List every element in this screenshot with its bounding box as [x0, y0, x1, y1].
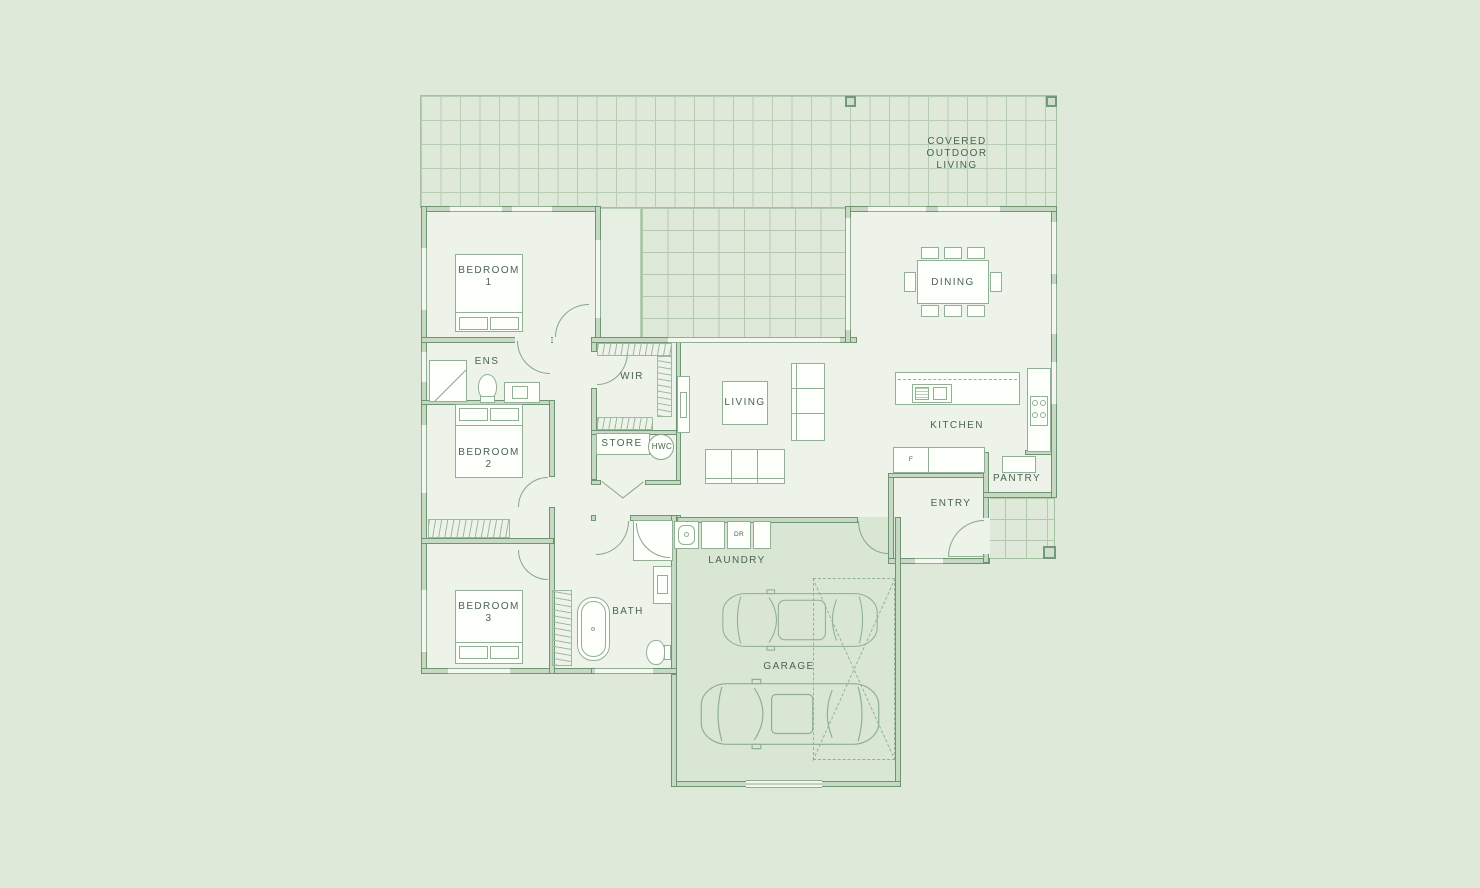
- bath-toilet-tank: [664, 645, 671, 660]
- window-bed3-left: [421, 590, 427, 652]
- kitchen-sink-basin-1: [915, 387, 929, 400]
- door-leaf-front: [948, 556, 985, 557]
- dining-chair-right: [990, 272, 1002, 292]
- bed1-fold-line: [456, 312, 522, 313]
- floor-plan: COVERED OUTDOOR LIVING BEDROOM 1 ENS WIR…: [0, 0, 1480, 888]
- label-entry: ENTRY: [931, 498, 972, 510]
- wir-rail-bottom: [597, 417, 653, 430]
- laundry-tub-drain: [684, 532, 689, 537]
- label-bedroom2: BEDROOM 2: [458, 447, 519, 471]
- window-bed1-left: [421, 248, 427, 310]
- floor-plan-page: { "labels": { "covered_outdoor_living": …: [0, 0, 1480, 888]
- wall-garage-left: [671, 674, 677, 787]
- ens-shower: [429, 360, 467, 402]
- window-bed2-left: [421, 425, 427, 493]
- bath-tub-drain: [591, 627, 595, 631]
- wall-entry-left: [888, 475, 894, 563]
- kitchen-bench-divider: [928, 448, 929, 472]
- cooktop-burner-1: [1032, 400, 1038, 406]
- patio-notch: [596, 208, 641, 338]
- dining-chair-left: [904, 272, 916, 292]
- label-store: STORE: [601, 438, 642, 450]
- label-pantry: PANTRY: [993, 473, 1041, 485]
- ens-toilet-tank: [480, 396, 495, 403]
- sofa-horizontal-back: [706, 478, 784, 479]
- dining-chair-bottom-3: [967, 305, 985, 317]
- porch-post: [1043, 546, 1056, 559]
- window-ens-left: [421, 352, 427, 382]
- dining-chair-bottom-1: [921, 305, 939, 317]
- label-kitchen: KITCHEN: [930, 420, 984, 432]
- label-fridge: F: [909, 454, 913, 466]
- label-dryer: DR: [734, 529, 744, 541]
- kitchen-overhead-cupboard: [898, 379, 1017, 380]
- window-bed1-top-1: [450, 206, 502, 212]
- window-dining-top-1: [868, 206, 926, 212]
- label-garage: GARAGE: [763, 661, 814, 673]
- window-kitchen-right: [1051, 362, 1057, 404]
- garage-door-panel: [746, 780, 822, 788]
- pergola-post-right: [1046, 96, 1057, 107]
- bed3-fold-line: [456, 642, 522, 643]
- slider-dining-left: [845, 218, 851, 330]
- tv-screen: [680, 392, 687, 418]
- washing-machine: [701, 521, 725, 549]
- bath-toilet-bowl: [646, 640, 665, 665]
- bed3-robe-rail: [552, 590, 572, 666]
- bed3-pillow-left: [459, 646, 488, 659]
- bed2-pillow-right: [490, 408, 519, 421]
- label-bedroom3: BEDROOM 3: [458, 601, 519, 625]
- pantry-shelf: [1002, 456, 1036, 473]
- wall-bed1-top: [421, 206, 601, 212]
- label-dining: DINING: [931, 277, 974, 289]
- label-hwc: HWC: [652, 441, 673, 453]
- wall-store-bottom-b: [645, 480, 681, 485]
- window-bed1-right: [595, 240, 601, 318]
- window-entry-bottom: [915, 558, 943, 564]
- window-bed1-top-2: [512, 206, 552, 212]
- dining-chair-top-3: [967, 247, 985, 259]
- sofa-vertical-back: [796, 364, 797, 440]
- pergola-post-left: [845, 96, 856, 107]
- label-living: LIVING: [724, 397, 765, 409]
- wir-rail-top: [597, 343, 672, 356]
- window-bath-bottom: [595, 668, 653, 674]
- dining-chair-top-2: [944, 247, 962, 259]
- ens-vanity-basin: [512, 386, 528, 399]
- wall-bed2-right-a: [549, 400, 555, 477]
- bath-vanity-basin: [657, 575, 668, 594]
- wall-pantry-bottom: [983, 492, 1057, 498]
- slider-living-top: [668, 337, 840, 343]
- cooktop-burner-3: [1032, 412, 1038, 418]
- cooktop-burner-4: [1040, 412, 1046, 418]
- dining-chair-top-1: [921, 247, 939, 259]
- doorgap-bed1: [553, 337, 591, 343]
- wir-rail-right: [657, 356, 672, 417]
- wall-bed2-bed3: [421, 538, 554, 544]
- label-covered-outdoor-living: COVERED OUTDOOR LIVING: [927, 136, 988, 172]
- window-dining-right-1: [1051, 222, 1057, 274]
- window-dining-top-2: [938, 206, 1000, 212]
- bed2-robe-rail: [428, 519, 510, 538]
- window-bed3-bottom: [448, 668, 510, 674]
- cooktop-burner-2: [1040, 400, 1046, 406]
- window-dining-right-2: [1051, 284, 1057, 334]
- bed2-fold-line: [456, 425, 522, 426]
- label-wir: WIR: [620, 371, 644, 383]
- courtyard-deck: [641, 208, 845, 338]
- laundry-bench: [753, 521, 771, 549]
- wall-garage-right: [895, 517, 901, 787]
- bed2-pillow-left: [459, 408, 488, 421]
- label-ens: ENS: [475, 356, 500, 368]
- bed1-pillow-right: [490, 317, 519, 330]
- dining-chair-bottom-2: [944, 305, 962, 317]
- kitchen-lower-bench: [893, 447, 985, 473]
- living-floor: [671, 342, 895, 521]
- label-bedroom1: BEDROOM 1: [458, 265, 519, 289]
- wall-store-bottom-a: [591, 480, 601, 485]
- wall-entry-top: [888, 473, 988, 478]
- kitchen-sink-basin-2: [933, 387, 947, 400]
- label-laundry: LAUNDRY: [708, 555, 765, 567]
- bed3-pillow-right: [490, 646, 519, 659]
- label-bath: BATH: [612, 606, 644, 618]
- bed1-pillow-left: [459, 317, 488, 330]
